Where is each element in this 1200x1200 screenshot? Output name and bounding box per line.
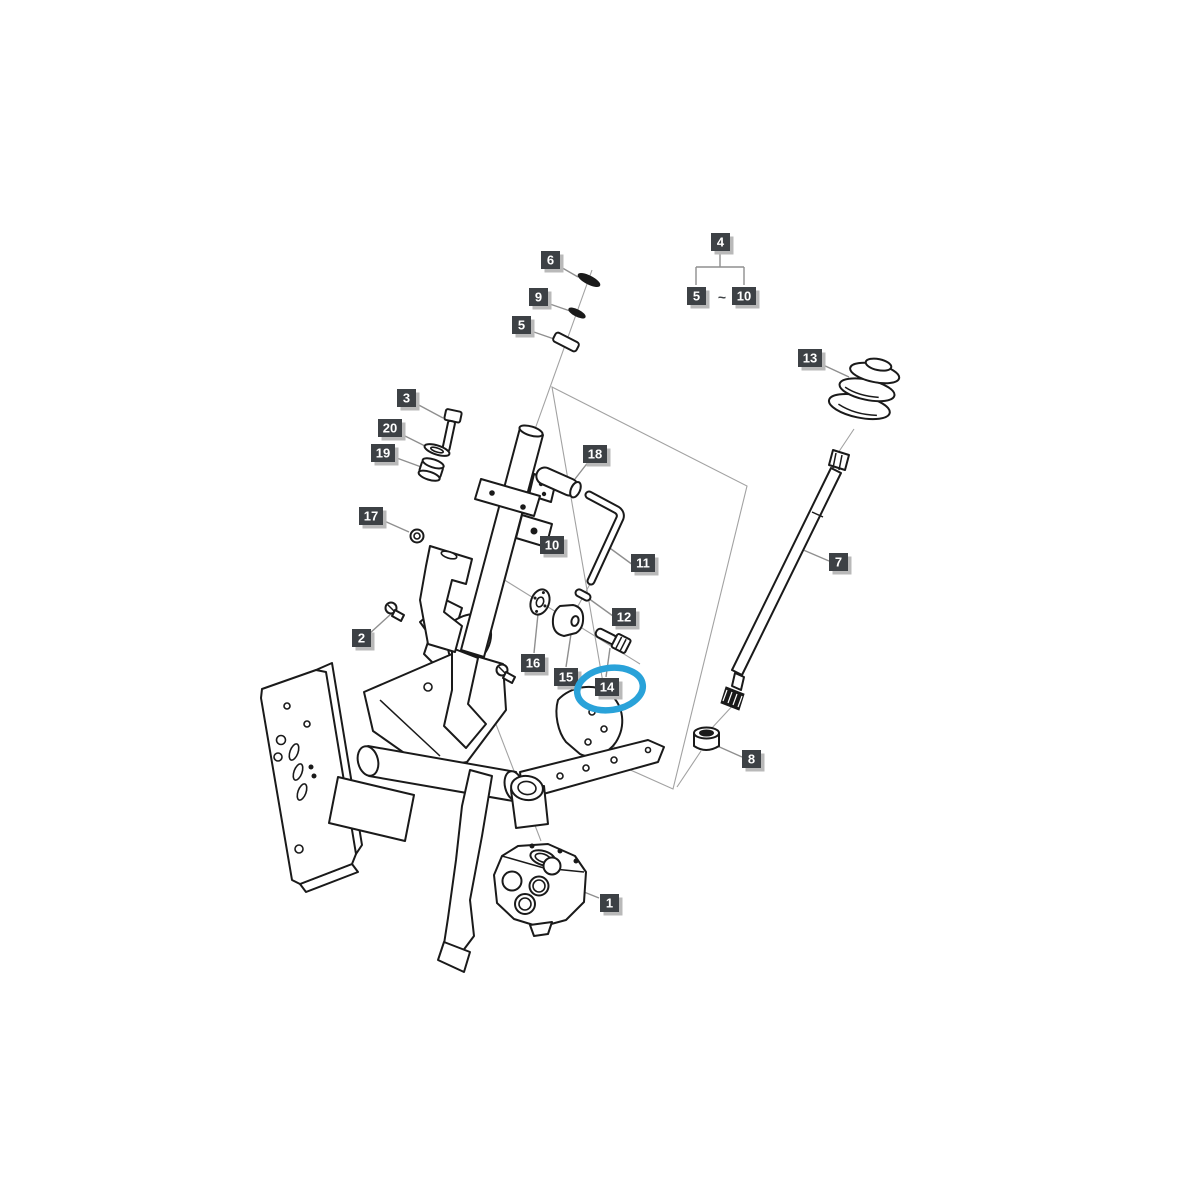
shaft-part-7 bbox=[721, 450, 849, 710]
svg-text:20: 20 bbox=[383, 421, 397, 436]
svg-text:6: 6 bbox=[547, 253, 554, 268]
label-16[interactable]: 16 bbox=[521, 654, 549, 676]
svg-text:11: 11 bbox=[636, 556, 650, 571]
svg-text:2: 2 bbox=[358, 631, 365, 646]
label-10[interactable]: 10 bbox=[540, 536, 568, 558]
label-4-group[interactable]: 4 bbox=[711, 233, 734, 255]
group-separator: ~ bbox=[718, 289, 726, 305]
label-6[interactable]: 6 bbox=[541, 251, 564, 273]
label-8[interactable]: 8 bbox=[742, 750, 765, 772]
label-10-group[interactable]: 10 bbox=[732, 287, 760, 309]
svg-text:5: 5 bbox=[693, 289, 700, 304]
svg-text:16: 16 bbox=[526, 656, 540, 671]
svg-text:18: 18 bbox=[588, 447, 602, 462]
svg-text:14: 14 bbox=[600, 680, 615, 695]
label-3[interactable]: 3 bbox=[397, 389, 420, 411]
label-5-group[interactable]: 5 bbox=[687, 287, 710, 309]
bellows-part-13 bbox=[827, 351, 902, 424]
svg-text:5: 5 bbox=[518, 318, 525, 333]
steering-column bbox=[420, 423, 556, 657]
svg-text:8: 8 bbox=[748, 752, 755, 767]
svg-text:3: 3 bbox=[403, 391, 410, 406]
svg-text:17: 17 bbox=[364, 509, 378, 524]
bushing-part-8 bbox=[694, 728, 719, 751]
svg-text:1: 1 bbox=[606, 896, 613, 911]
long-leg bbox=[444, 770, 492, 952]
label-5[interactable]: 5 bbox=[512, 316, 535, 338]
screw-part-2 bbox=[386, 603, 405, 622]
label-19[interactable]: 19 bbox=[371, 444, 399, 466]
label-11[interactable]: 11 bbox=[631, 554, 659, 576]
steering-valve bbox=[494, 844, 586, 937]
svg-text:9: 9 bbox=[535, 290, 542, 305]
label-20[interactable]: 20 bbox=[378, 419, 406, 441]
label-7[interactable]: 7 bbox=[829, 553, 852, 575]
label-12[interactable]: 12 bbox=[612, 608, 640, 630]
svg-text:10: 10 bbox=[737, 289, 751, 304]
svg-text:10: 10 bbox=[545, 538, 559, 553]
rod-part-11 bbox=[589, 495, 620, 581]
label-18[interactable]: 18 bbox=[583, 445, 611, 467]
svg-text:19: 19 bbox=[376, 446, 390, 461]
svg-text:7: 7 bbox=[835, 555, 842, 570]
top-small-parts bbox=[552, 271, 601, 352]
bolt-part-3 bbox=[438, 409, 462, 452]
sleeve-part-5 bbox=[552, 332, 580, 353]
frame-assembly bbox=[261, 600, 664, 972]
svg-text:15: 15 bbox=[559, 670, 573, 685]
nut-part-17 bbox=[411, 530, 424, 543]
washer-part-9 bbox=[568, 306, 587, 320]
cylinder-part-15 bbox=[553, 605, 583, 636]
label-14-highlighted[interactable]: 14 bbox=[595, 678, 623, 700]
snap-ring-part-6 bbox=[576, 271, 601, 289]
svg-text:13: 13 bbox=[803, 351, 817, 366]
svg-text:12: 12 bbox=[617, 610, 631, 625]
label-13[interactable]: 13 bbox=[798, 349, 826, 371]
label-1[interactable]: 1 bbox=[600, 894, 623, 916]
pin-part-12 bbox=[574, 588, 591, 602]
diagram-canvas: 6 9 5 4 5 ~ 10 13 3 20 19 bbox=[0, 0, 1200, 1200]
svg-text:4: 4 bbox=[717, 235, 725, 250]
shaft-parts bbox=[694, 351, 902, 750]
label-9[interactable]: 9 bbox=[529, 288, 552, 310]
disc-part-16 bbox=[527, 587, 553, 618]
label-17[interactable]: 17 bbox=[359, 507, 387, 529]
collar-part-19 bbox=[417, 456, 444, 483]
parts-diagram: 6 9 5 4 5 ~ 10 13 3 20 19 bbox=[0, 0, 1200, 1200]
